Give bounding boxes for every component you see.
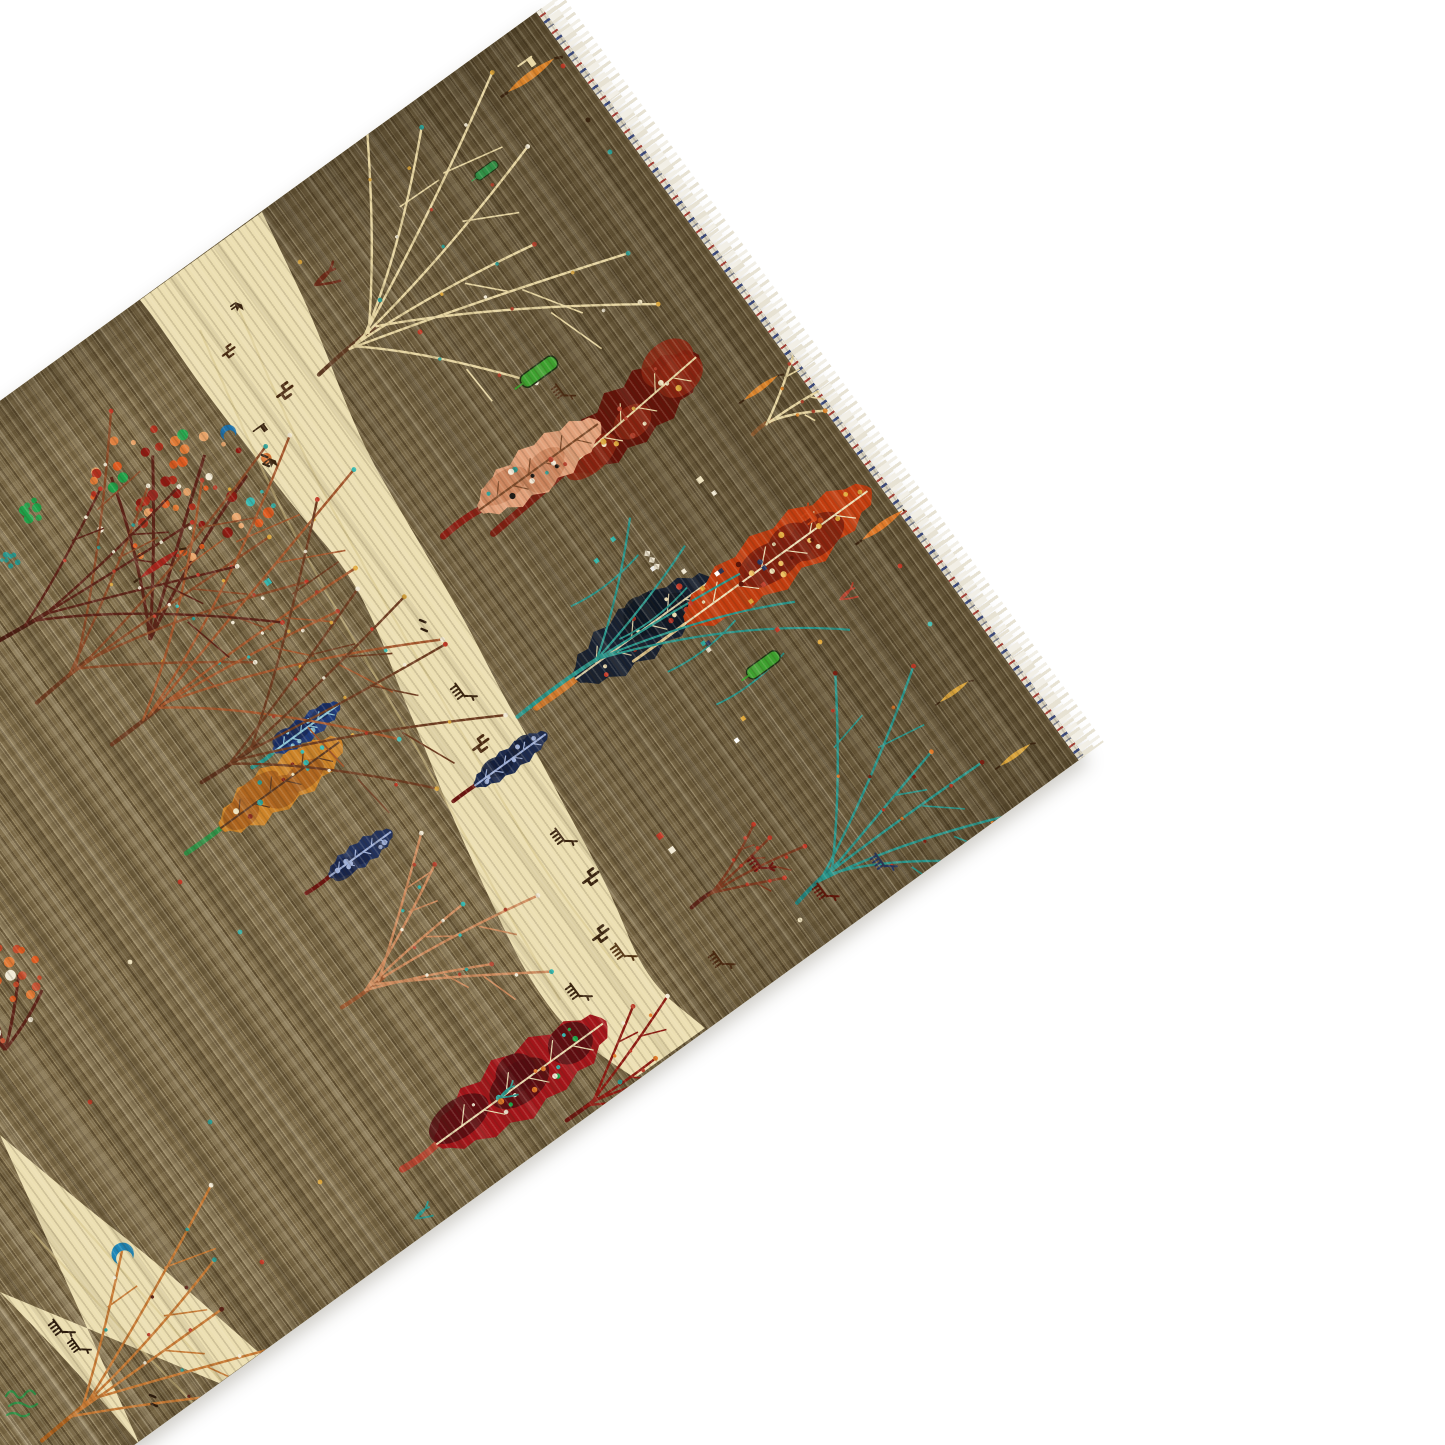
dot-motif — [558, 1140, 563, 1145]
dot-motif — [478, 1360, 483, 1365]
dot-motif — [398, 1300, 403, 1305]
rug-canvas — [0, 8, 1084, 1445]
fringe-tassels-short-icon — [542, 0, 1095, 756]
bird-dark-motif — [288, 1419, 310, 1442]
rug-product-photo — [0, 0, 1445, 1445]
rug-edge-binding — [536, 8, 1084, 760]
